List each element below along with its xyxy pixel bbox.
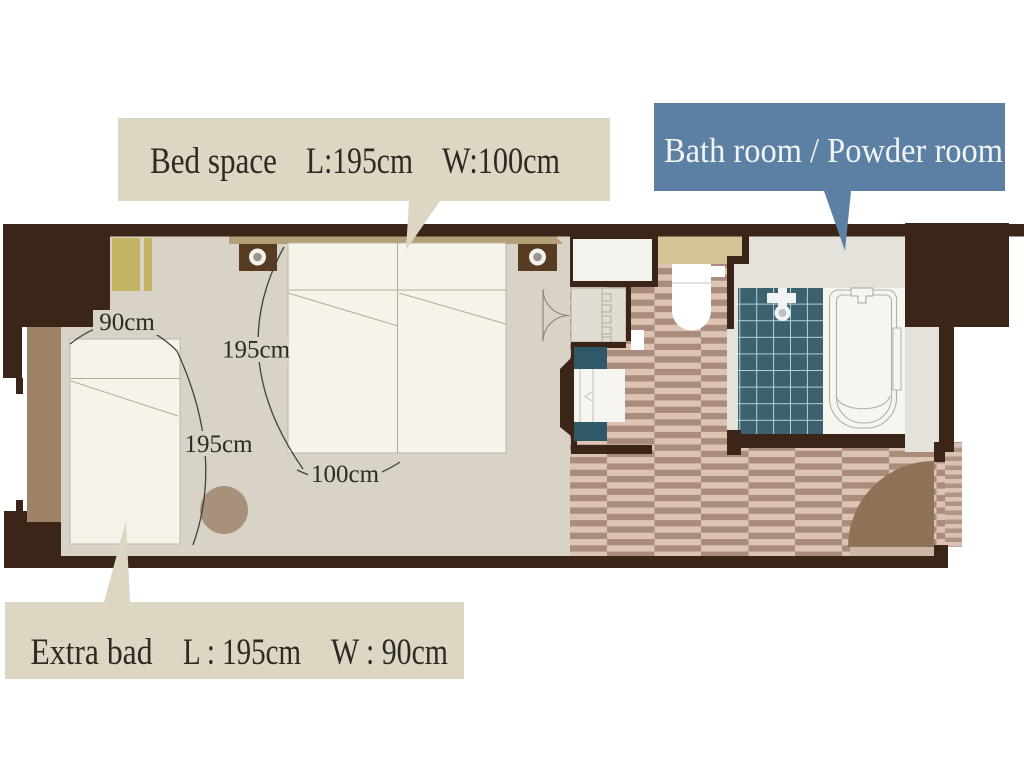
svg-text:L : 195cm: L : 195cm: [183, 632, 301, 673]
svg-text:195cm: 195cm: [222, 337, 291, 364]
svg-text:90cm: 90cm: [99, 309, 155, 336]
svg-text:W:100cm: W:100cm: [442, 141, 560, 182]
svg-text:100cm: 100cm: [311, 461, 380, 488]
svg-text:W : 90cm: W : 90cm: [331, 632, 448, 673]
svg-text:Bed space: Bed space: [150, 141, 277, 182]
svg-text:L:195cm: L:195cm: [306, 141, 413, 182]
svg-text:195cm: 195cm: [184, 431, 253, 458]
svg-text:Bath room / Powder room: Bath room / Powder room: [664, 131, 1003, 170]
svg-text:Extra bad: Extra bad: [31, 632, 153, 673]
